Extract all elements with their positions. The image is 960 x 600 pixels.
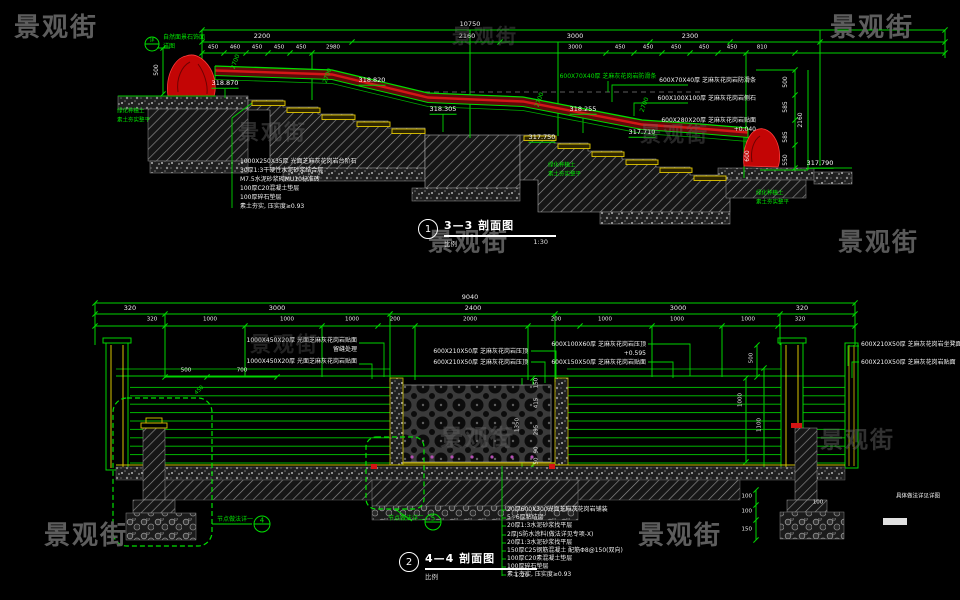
annotation-label: 30厚1:3干硬性水泥砂浆结合层 <box>240 168 323 174</box>
annotation-label: 1000X250X35厚 光面芝麻灰花岗岩台阶石 <box>240 159 357 165</box>
annotation-label: 节点做法详二 <box>388 516 424 522</box>
dim-label: 585 <box>783 101 789 112</box>
section-4-4-title: 2 4—4 剖面图 比例 1:20 <box>399 550 537 581</box>
dim-label: 2400 <box>465 305 482 312</box>
scale-value: 1:20 <box>514 571 529 581</box>
elevation-label: 318.870 <box>212 80 239 89</box>
annotation-label: 绿化种植土 <box>548 163 576 169</box>
dim-label: 2000 <box>463 317 477 323</box>
dim-label: 320 <box>147 317 158 323</box>
dim-label: 450 <box>615 45 626 51</box>
dim-label: 295 <box>534 425 540 436</box>
dim-label: 150 <box>742 527 753 533</box>
annotation-label: +0.595 <box>624 351 646 357</box>
dim-label: 1000 <box>738 393 744 407</box>
dim-label: 1100 <box>757 418 763 432</box>
annotation-label: M7.5水泥砂浆砌MU10标准砖 <box>240 177 320 183</box>
dim-label: 100 <box>742 494 753 500</box>
dim-label: 320 <box>795 317 806 323</box>
dim-label: 50 <box>534 458 540 465</box>
note-line: 20厚1:3水泥砂浆找平层 <box>507 540 572 546</box>
title-underline <box>425 568 537 570</box>
slat-wall-left <box>130 380 390 465</box>
stone-post-left <box>390 378 403 465</box>
dim-label: 2980 <box>326 45 340 51</box>
stone-post-right <box>555 378 568 465</box>
dim-label: 2300 <box>682 33 699 40</box>
dim-label: 320 <box>124 305 136 312</box>
dim-label: 450 <box>643 45 654 51</box>
dim-label: 450 <box>671 45 682 51</box>
annotation-label: 1000X450X20厚 光面芝麻灰花岗岩贴面 <box>247 359 358 365</box>
dim-label: 1000 <box>598 317 612 323</box>
end-column-left <box>106 343 128 470</box>
dim-label: 585 <box>783 131 789 142</box>
dim-label: 450 <box>699 45 710 51</box>
dim-label: 450 <box>252 45 263 51</box>
dim-label: 1000 <box>203 317 217 323</box>
dim-label: 100 <box>813 500 824 506</box>
watermark: 景观街 <box>640 124 709 145</box>
cad-linework <box>0 0 960 600</box>
annotation-label: 素土夯实整平 <box>548 172 581 178</box>
dim-label: 600 <box>745 150 751 161</box>
watermark: 景观街 <box>44 523 128 549</box>
watermark: 景观街 <box>250 334 319 355</box>
annotation-label: 素土夯实整平 <box>756 200 789 206</box>
dim-label: 200 <box>390 317 401 323</box>
elevation-label: 318.820 <box>359 77 386 86</box>
note-line: 20厚1:3水泥砂浆找平层 <box>507 523 572 529</box>
annotation-label: 素土夯实整平 <box>117 118 150 124</box>
dim-label: 2160 <box>798 112 804 127</box>
dim-label: 460 <box>230 45 241 51</box>
scale-label: 比例 <box>425 571 438 581</box>
annotation-label: 留缝处理 <box>333 347 357 353</box>
dim-label: 320 <box>796 305 808 312</box>
elevation-label: 317.790 <box>807 160 834 169</box>
annotation-label: 600X210X50厚 芝麻灰花岗岩贴面 <box>861 360 956 366</box>
dim-label: 500 <box>783 76 789 87</box>
annotation-label: 600X150X50厚 芝麻灰花岗岩贴面 <box>551 360 646 366</box>
top-foundation-hatching <box>118 96 852 224</box>
dim-label: 150 <box>534 378 540 389</box>
dim-label: 700 <box>237 368 248 374</box>
dim-label: 450 <box>274 45 285 51</box>
dim-label: 500 <box>181 368 192 374</box>
elevation-label: 318.305 <box>430 106 457 115</box>
section-title-text: 3—3 剖面图 <box>444 217 556 233</box>
dim-label: 1000 <box>670 317 684 323</box>
watermark: 景观街 <box>14 15 98 41</box>
watermark: 景观街 <box>820 429 895 452</box>
elevation-label: 318.255 <box>570 106 597 115</box>
watermark: 景观街 <box>838 230 919 255</box>
dim-label: 1000 <box>741 317 755 323</box>
dim-label: 500 <box>749 353 755 364</box>
dim-label: 100 <box>742 509 753 515</box>
watermark: 景观街 <box>238 122 307 143</box>
elevation-label: 317.750 <box>529 134 556 143</box>
annotation-label: 600X100X60厚 芝麻灰花岗岩压顶 <box>551 342 646 348</box>
dim-label: 3000 <box>567 33 584 40</box>
annotation-label: 详 <box>149 39 154 44</box>
annotation-label: 素土夯实, 压实度≥0.93 <box>240 204 304 210</box>
watermark: 景观街 <box>638 523 722 549</box>
scale-value: 1:30 <box>533 238 548 248</box>
title-underline <box>444 235 556 237</box>
note-line: 5~6厚粘结层 <box>507 515 544 521</box>
dim-label: 1350 <box>515 418 521 432</box>
annotation-label: 具体做法详见详图 <box>896 494 940 500</box>
dim-label: 500 <box>154 64 160 75</box>
scale-bar <box>883 518 907 525</box>
watermark: 景观街 <box>830 15 914 41</box>
annotation-label: 详图 <box>163 44 175 50</box>
watermark: 景观街 <box>440 427 515 450</box>
dim-label: 1000 <box>345 317 359 323</box>
dim-label: 3000 <box>670 305 687 312</box>
note-line: 20厚600X300光面芝麻灰花岗岩铺装 <box>507 507 608 513</box>
annotation-label: 节点做法详一 <box>217 517 253 523</box>
section-title-text: 4—4 剖面图 <box>425 550 537 566</box>
annotation-label: 600X70X40厚 芝麻灰花岗岩防滑条 <box>659 78 756 84</box>
dim-label: 9040 <box>462 294 479 301</box>
annotation-label: 5 <box>431 516 435 523</box>
annotation-label: 4 <box>260 518 264 525</box>
cad-drawing-canvas: 1075022002160300023004504604504504502980… <box>0 0 960 600</box>
dim-label: 2200 <box>254 33 271 40</box>
annotation-label: 600X210X50厚 芝麻灰花岗岩压顶 <box>433 349 528 355</box>
note-line: 2厚JS防水涂料(做法详见专项-X) <box>507 532 593 538</box>
dim-label: 450 <box>296 45 307 51</box>
annotation-label: 600X210X50厚 芝麻灰花岗岩坐凳面 <box>861 342 960 348</box>
section-3-3-title: 1 3—3 剖面图 比例 1:30 <box>418 217 556 248</box>
dim-label: 3000 <box>269 305 286 312</box>
dim-label: 450 <box>208 45 219 51</box>
watermark: 景观街 <box>452 26 518 46</box>
annotation-label: 600X100X100厚 芝麻灰花岗岩侧石 <box>658 96 757 102</box>
dim-label: 450 <box>727 45 738 51</box>
scale-label: 比例 <box>444 238 457 248</box>
seat-accent-red <box>791 423 802 428</box>
dim-label: 550 <box>783 154 789 165</box>
annotation-label: 600X70X40厚 芝麻灰花岗岩防滑条 <box>560 74 657 80</box>
dim-label: 810 <box>757 45 768 51</box>
dim-label: 415 <box>534 398 540 409</box>
annotation-label: 自然面景石饰面 <box>163 35 205 41</box>
annotation-label: +0.040 <box>734 127 756 133</box>
dim-label: 90 <box>534 447 540 454</box>
title-number-bubble: 1 <box>418 219 438 239</box>
title-number-bubble: 2 <box>399 552 419 572</box>
annotation-label: 绿化种植土 <box>117 109 145 115</box>
dim-label: 3000 <box>568 45 582 51</box>
annotation-label: 600X210X50厚 芝麻灰花岗岩压顶 <box>433 360 528 366</box>
slat-wall-right <box>568 380 781 465</box>
dim-label: 1000 <box>280 317 294 323</box>
dim-label: 200 <box>551 317 562 323</box>
annotation-label: 绿化种植土 <box>756 191 784 197</box>
annotation-label: 100厚C20混凝土垫层 <box>240 186 299 192</box>
annotation-label: 100厚碎石垫层 <box>240 195 281 201</box>
feature-rock-left <box>167 55 215 96</box>
